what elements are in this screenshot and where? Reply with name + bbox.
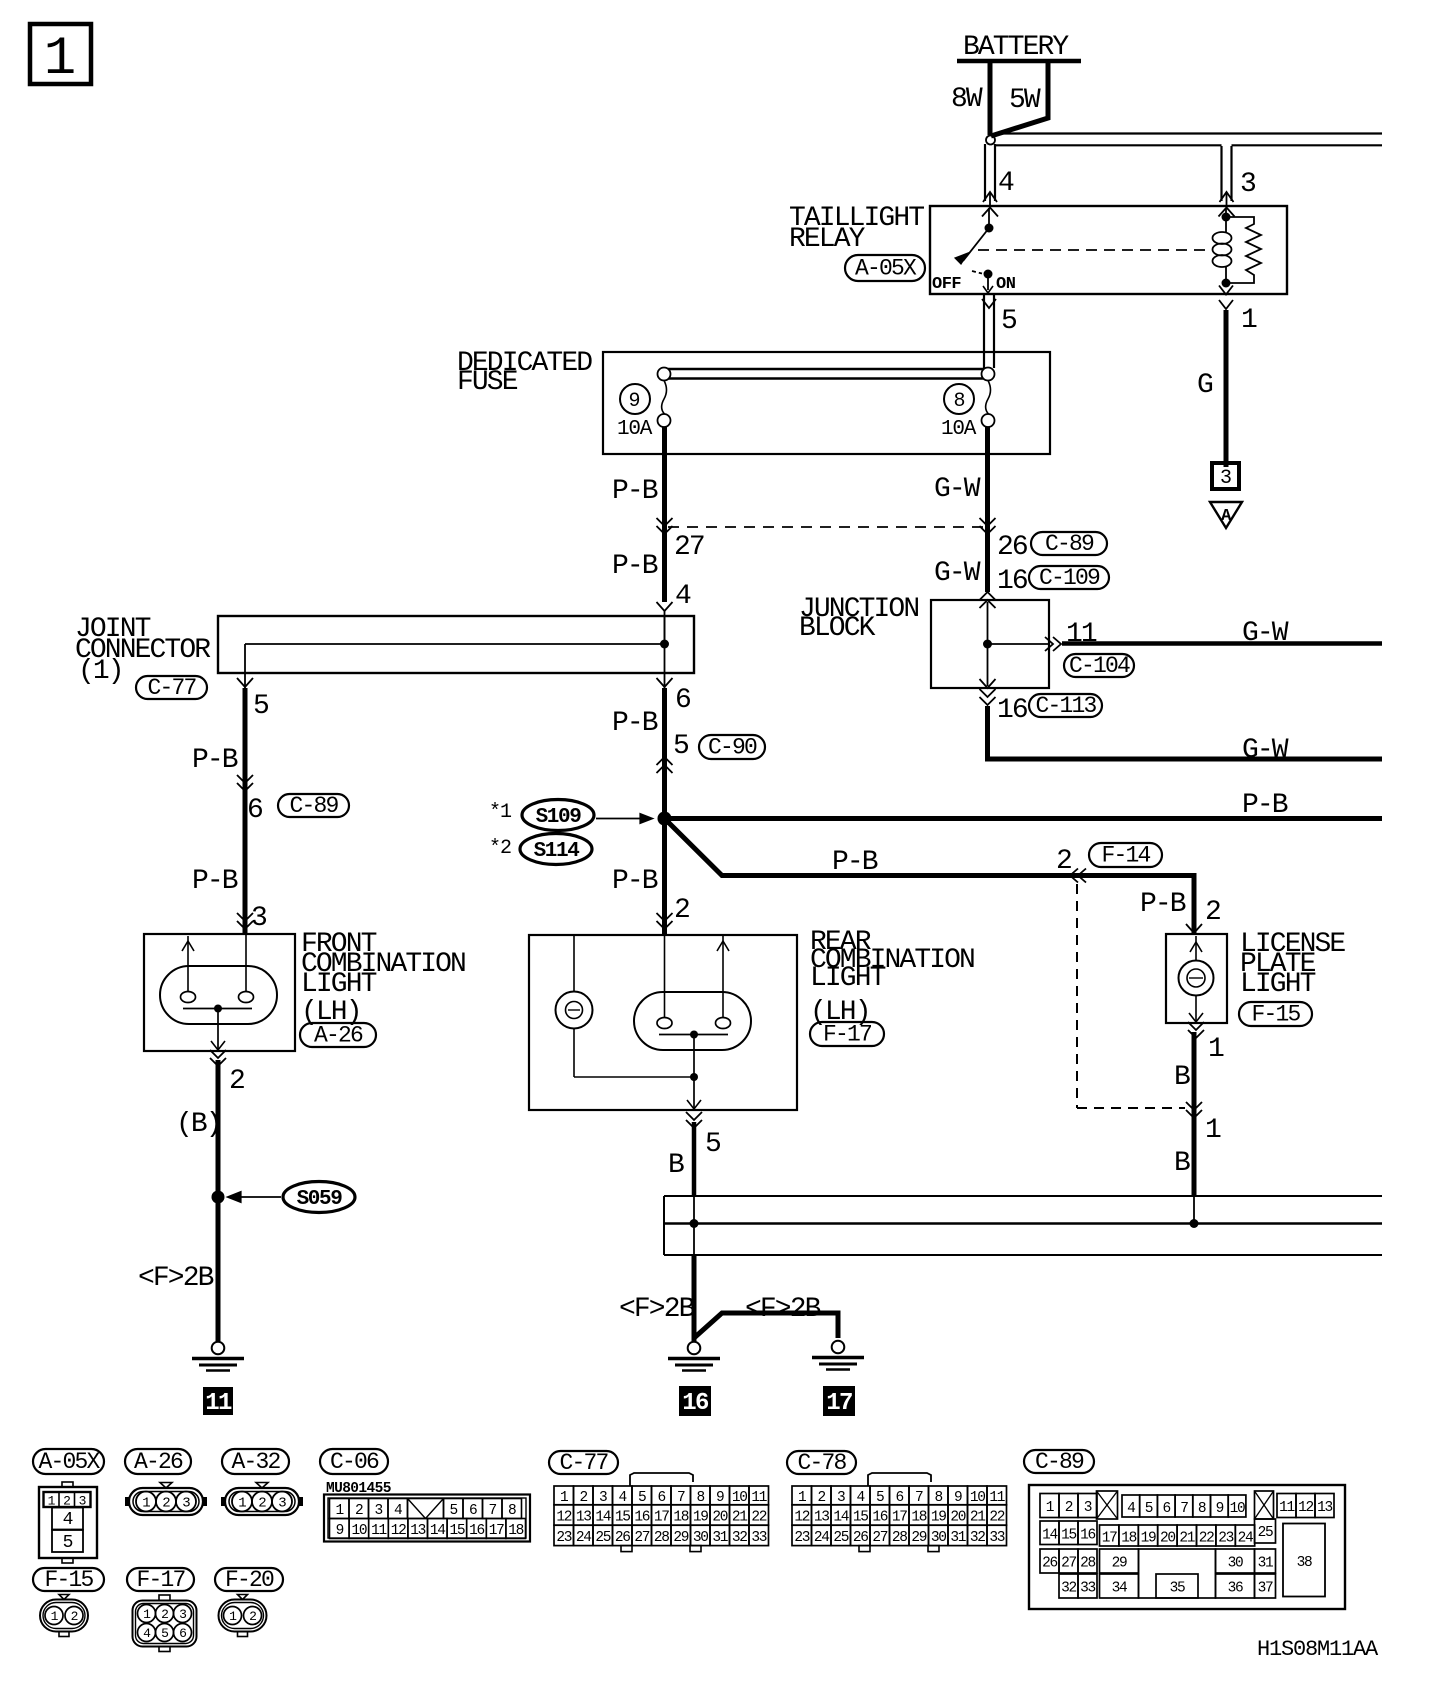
svg-text:25: 25 <box>1258 1525 1273 1541</box>
svg-text:15: 15 <box>449 1523 464 1539</box>
svg-text:14: 14 <box>833 1509 848 1525</box>
svg-text:2: 2 <box>1205 897 1220 928</box>
svg-text:10A: 10A <box>941 418 977 441</box>
svg-text:6: 6 <box>896 1490 904 1506</box>
svg-text:16: 16 <box>682 1390 709 1417</box>
svg-text:25: 25 <box>833 1530 848 1546</box>
svg-text:4: 4 <box>619 1490 627 1506</box>
svg-text:16: 16 <box>634 1509 649 1525</box>
svg-text:31: 31 <box>950 1530 965 1546</box>
svg-text:1: 1 <box>44 29 76 90</box>
svg-text:3: 3 <box>182 1496 190 1512</box>
svg-text:27: 27 <box>674 532 704 563</box>
svg-text:G-W: G-W <box>1242 735 1289 766</box>
svg-text:3: 3 <box>599 1490 607 1506</box>
svg-text:F-14: F-14 <box>1101 842 1150 868</box>
svg-text:3: 3 <box>375 1503 383 1519</box>
svg-text:1: 1 <box>1241 305 1257 336</box>
svg-text:13: 13 <box>814 1509 829 1525</box>
svg-text:18: 18 <box>508 1523 523 1539</box>
svg-text:5: 5 <box>1001 306 1017 337</box>
svg-text:18: 18 <box>673 1509 688 1525</box>
svg-text:3: 3 <box>837 1490 845 1506</box>
svg-text:10: 10 <box>732 1490 747 1506</box>
svg-text:C-78: C-78 <box>797 1450 846 1476</box>
svg-text:31: 31 <box>1258 1556 1273 1572</box>
svg-text:P-B: P-B <box>612 708 658 739</box>
svg-text:C-89: C-89 <box>1035 1449 1084 1475</box>
svg-text:4: 4 <box>63 1510 74 1530</box>
svg-text:28: 28 <box>892 1530 907 1546</box>
svg-text:F-15: F-15 <box>44 1567 93 1593</box>
svg-text:16: 16 <box>997 695 1027 726</box>
svg-text:A-05X: A-05X <box>38 1449 100 1475</box>
svg-text:33: 33 <box>989 1530 1004 1546</box>
svg-text:2: 2 <box>63 1494 70 1509</box>
svg-text:B: B <box>1174 1062 1190 1093</box>
svg-text:9: 9 <box>954 1490 962 1506</box>
svg-text:2: 2 <box>355 1503 363 1519</box>
svg-text:17: 17 <box>654 1509 669 1525</box>
svg-text:2: 2 <box>258 1496 266 1512</box>
svg-text:8: 8 <box>697 1490 705 1506</box>
svg-text:6: 6 <box>1162 1501 1170 1517</box>
svg-text:24: 24 <box>1238 1531 1253 1547</box>
svg-text:6: 6 <box>179 1626 186 1641</box>
svg-text:18: 18 <box>1121 1531 1136 1547</box>
svg-text:7: 7 <box>1180 1501 1188 1517</box>
svg-text:26: 26 <box>615 1530 630 1546</box>
svg-text:1: 1 <box>1046 1500 1054 1516</box>
svg-text:LIGHT: LIGHT <box>301 969 377 1000</box>
svg-text:1: 1 <box>238 1496 246 1512</box>
svg-text:C-90: C-90 <box>708 734 757 760</box>
svg-text:29: 29 <box>911 1530 926 1546</box>
svg-text:29: 29 <box>673 1530 688 1546</box>
svg-text:36: 36 <box>1228 1581 1243 1597</box>
svg-text:8: 8 <box>935 1490 943 1506</box>
svg-text:12: 12 <box>794 1509 809 1525</box>
svg-text:16: 16 <box>872 1509 887 1525</box>
svg-text:8: 8 <box>953 390 964 413</box>
svg-text:12: 12 <box>556 1509 571 1525</box>
svg-text:P-B: P-B <box>192 745 238 776</box>
svg-text:B: B <box>668 1150 684 1181</box>
svg-text:21: 21 <box>970 1509 985 1525</box>
svg-text:29: 29 <box>1112 1556 1127 1572</box>
svg-text:1: 1 <box>1205 1115 1221 1146</box>
svg-text:FUSE: FUSE <box>457 367 518 398</box>
svg-text:C-104: C-104 <box>1069 653 1130 679</box>
svg-text:10A: 10A <box>617 418 653 441</box>
svg-text:6: 6 <box>469 1503 477 1519</box>
svg-text:30: 30 <box>1228 1556 1243 1572</box>
svg-text:22: 22 <box>989 1509 1004 1525</box>
svg-text:7: 7 <box>677 1490 685 1506</box>
svg-text:1: 1 <box>336 1503 344 1519</box>
svg-text:A: A <box>1221 507 1232 526</box>
svg-text:23: 23 <box>794 1530 809 1546</box>
svg-text:13: 13 <box>1317 1500 1332 1516</box>
svg-text:A-26: A-26 <box>134 1449 183 1475</box>
svg-text:27: 27 <box>872 1530 887 1546</box>
svg-text:30: 30 <box>931 1530 946 1546</box>
svg-text:3: 3 <box>1240 169 1256 200</box>
svg-text:9: 9 <box>628 390 639 413</box>
svg-text:22: 22 <box>751 1509 766 1525</box>
svg-text:37: 37 <box>1258 1581 1273 1597</box>
svg-text:2: 2 <box>818 1490 826 1506</box>
svg-text:15: 15 <box>615 1509 630 1525</box>
svg-text:9: 9 <box>336 1523 344 1539</box>
svg-text:25: 25 <box>595 1530 610 1546</box>
svg-text:2: 2 <box>162 1496 170 1512</box>
svg-text:5: 5 <box>705 1129 721 1160</box>
svg-text:12: 12 <box>1298 1500 1313 1516</box>
svg-text:3: 3 <box>179 1607 186 1622</box>
svg-text:A-32: A-32 <box>231 1449 280 1475</box>
svg-text:LIGHT: LIGHT <box>810 963 886 994</box>
svg-text:P-B: P-B <box>612 866 658 897</box>
svg-text:20: 20 <box>1160 1531 1175 1547</box>
svg-text:5: 5 <box>638 1490 646 1506</box>
svg-text:2: 2 <box>249 1609 256 1624</box>
svg-text:13: 13 <box>410 1523 425 1539</box>
svg-text:A-05X: A-05X <box>855 255 917 281</box>
svg-text:C-89: C-89 <box>289 793 338 819</box>
svg-text:23: 23 <box>1218 1531 1233 1547</box>
svg-text:4: 4 <box>857 1490 865 1506</box>
svg-text:3: 3 <box>251 903 267 934</box>
svg-text:P-B: P-B <box>1140 889 1186 920</box>
svg-text:1: 1 <box>142 1496 150 1512</box>
svg-text:F-17: F-17 <box>823 1021 871 1047</box>
svg-text:23: 23 <box>556 1530 571 1546</box>
svg-text:27: 27 <box>1061 1556 1076 1572</box>
svg-text:<F>2B: <F>2B <box>138 1263 214 1294</box>
svg-text:S059: S059 <box>297 1188 343 1211</box>
svg-text:5: 5 <box>1145 1501 1153 1517</box>
svg-text:32: 32 <box>732 1530 747 1546</box>
svg-text:4: 4 <box>143 1626 151 1641</box>
svg-text:P-B: P-B <box>192 866 238 897</box>
svg-text:C-109: C-109 <box>1039 565 1100 591</box>
svg-text:3: 3 <box>1084 1500 1092 1516</box>
svg-text:5W: 5W <box>1009 85 1041 116</box>
svg-text:2: 2 <box>71 1609 78 1624</box>
svg-text:11: 11 <box>371 1523 386 1539</box>
svg-text:28: 28 <box>654 1530 669 1546</box>
svg-text:16: 16 <box>469 1523 484 1539</box>
svg-text:C-113: C-113 <box>1035 693 1096 719</box>
svg-text:OFF: OFF <box>932 275 961 294</box>
svg-text:14: 14 <box>595 1509 610 1525</box>
svg-text:11: 11 <box>751 1490 766 1506</box>
svg-text:18: 18 <box>911 1509 926 1525</box>
svg-text:10: 10 <box>970 1490 985 1506</box>
svg-text:14: 14 <box>1042 1528 1057 1544</box>
svg-text:30: 30 <box>693 1530 708 1546</box>
svg-text:26: 26 <box>1042 1556 1057 1572</box>
svg-text:19: 19 <box>693 1509 708 1525</box>
svg-text:8: 8 <box>1198 1501 1206 1517</box>
svg-text:16: 16 <box>1080 1528 1095 1544</box>
svg-text:4: 4 <box>1127 1501 1135 1517</box>
svg-text:24: 24 <box>814 1530 829 1546</box>
svg-text:S109: S109 <box>536 806 582 829</box>
svg-text:9: 9 <box>1216 1501 1224 1517</box>
svg-text:17: 17 <box>1102 1531 1117 1547</box>
svg-text:33: 33 <box>1080 1581 1095 1597</box>
svg-text:2: 2 <box>229 1066 244 1097</box>
svg-text:1: 1 <box>1208 1034 1224 1065</box>
svg-text:3: 3 <box>1220 467 1231 490</box>
svg-text:B: B <box>1174 1148 1190 1179</box>
svg-text:4: 4 <box>394 1503 402 1519</box>
svg-text:A-26: A-26 <box>314 1022 363 1048</box>
svg-text:17: 17 <box>892 1509 907 1525</box>
svg-text:28: 28 <box>1080 1556 1095 1572</box>
svg-text:5: 5 <box>63 1533 74 1553</box>
svg-text:20: 20 <box>950 1509 965 1525</box>
svg-text:C-89: C-89 <box>1045 531 1094 557</box>
svg-text:4: 4 <box>998 168 1014 199</box>
svg-text:1: 1 <box>51 1609 59 1624</box>
svg-text:11: 11 <box>205 1390 232 1417</box>
svg-text:13: 13 <box>576 1509 591 1525</box>
svg-text:S114: S114 <box>534 840 580 863</box>
svg-text:G: G <box>1197 370 1213 401</box>
svg-text:5: 5 <box>161 1626 168 1641</box>
svg-text:4: 4 <box>675 581 691 612</box>
svg-text:F-15: F-15 <box>1251 1001 1300 1027</box>
svg-text:1: 1 <box>798 1490 806 1506</box>
svg-text:33: 33 <box>751 1530 766 1546</box>
svg-text:19: 19 <box>1141 1531 1156 1547</box>
svg-text:LIGHT: LIGHT <box>1240 969 1316 1000</box>
svg-text:31: 31 <box>712 1530 727 1546</box>
svg-text:12: 12 <box>391 1523 406 1539</box>
svg-text:1: 1 <box>48 1494 56 1509</box>
svg-text:10: 10 <box>351 1523 366 1539</box>
svg-text:11: 11 <box>1066 619 1097 650</box>
svg-text:3: 3 <box>278 1496 286 1512</box>
svg-text:7: 7 <box>915 1490 923 1506</box>
svg-text:5: 5 <box>253 691 269 722</box>
svg-text:G-W: G-W <box>934 474 981 505</box>
svg-text:34: 34 <box>1112 1581 1127 1597</box>
svg-text:38: 38 <box>1297 1555 1312 1571</box>
svg-text:3: 3 <box>79 1494 86 1509</box>
svg-text:22: 22 <box>1199 1531 1214 1547</box>
svg-text:2: 2 <box>161 1607 168 1622</box>
svg-text:2: 2 <box>674 895 689 926</box>
svg-text:26: 26 <box>997 532 1027 563</box>
svg-text:14: 14 <box>430 1523 445 1539</box>
svg-text:P-B: P-B <box>1242 790 1288 821</box>
svg-text:G-W: G-W <box>934 558 981 589</box>
svg-text:C-06: C-06 <box>330 1449 379 1475</box>
svg-text:32: 32 <box>970 1530 985 1546</box>
svg-text:2: 2 <box>580 1490 588 1506</box>
svg-text:<F>2B: <F>2B <box>745 1294 821 1325</box>
svg-text:21: 21 <box>732 1509 747 1525</box>
svg-text:8W: 8W <box>951 84 983 115</box>
svg-text:(B): (B) <box>176 1109 221 1140</box>
svg-text:17: 17 <box>489 1523 504 1539</box>
svg-text:2: 2 <box>1065 1500 1073 1516</box>
svg-text:1: 1 <box>560 1490 568 1506</box>
svg-text:35: 35 <box>1170 1581 1185 1597</box>
svg-text:1: 1 <box>143 1607 151 1622</box>
svg-text:RELAY: RELAY <box>789 224 866 255</box>
svg-text:26: 26 <box>853 1530 868 1546</box>
svg-text:6: 6 <box>247 795 262 826</box>
svg-text:20: 20 <box>712 1509 727 1525</box>
svg-text:BATTERY: BATTERY <box>963 32 1069 63</box>
svg-text:9: 9 <box>716 1490 724 1506</box>
svg-text:F-17: F-17 <box>136 1567 184 1593</box>
svg-text:11: 11 <box>1279 1500 1294 1516</box>
svg-text:15: 15 <box>1061 1528 1076 1544</box>
svg-text:7: 7 <box>489 1503 497 1519</box>
svg-text:19: 19 <box>931 1509 946 1525</box>
svg-text:27: 27 <box>634 1530 649 1546</box>
svg-text:5: 5 <box>876 1490 884 1506</box>
svg-text:17: 17 <box>826 1390 852 1417</box>
svg-text:1: 1 <box>229 1609 237 1624</box>
svg-text:10: 10 <box>1230 1501 1245 1517</box>
svg-text:*2: *2 <box>489 837 511 860</box>
svg-text:6: 6 <box>675 685 690 716</box>
svg-text:5: 5 <box>673 731 689 762</box>
svg-text:P-B: P-B <box>612 551 658 582</box>
svg-text:ON: ON <box>996 275 1016 294</box>
svg-text:5: 5 <box>450 1503 458 1519</box>
svg-text:15: 15 <box>853 1509 868 1525</box>
svg-text:8: 8 <box>508 1503 516 1519</box>
svg-text:BLOCK: BLOCK <box>799 613 876 644</box>
svg-text:32: 32 <box>1061 1581 1076 1597</box>
svg-text:21: 21 <box>1179 1531 1194 1547</box>
svg-text:2: 2 <box>1056 846 1071 877</box>
svg-text:24: 24 <box>576 1530 591 1546</box>
svg-text:6: 6 <box>658 1490 666 1506</box>
svg-text:P-B: P-B <box>612 476 658 507</box>
svg-text:F-20: F-20 <box>225 1567 274 1593</box>
svg-text:<F>2B: <F>2B <box>619 1294 695 1325</box>
svg-text:H1S08M11AA: H1S08M11AA <box>1257 1637 1379 1662</box>
svg-text:*1: *1 <box>489 801 512 824</box>
svg-text:G-W: G-W <box>1242 618 1289 649</box>
svg-text:11: 11 <box>989 1490 1004 1506</box>
svg-text:P-B: P-B <box>832 847 878 878</box>
svg-text:16: 16 <box>997 566 1027 597</box>
svg-text:(1): (1) <box>78 656 123 687</box>
svg-text:C-77: C-77 <box>147 675 195 701</box>
svg-text:C-77: C-77 <box>559 1450 607 1476</box>
